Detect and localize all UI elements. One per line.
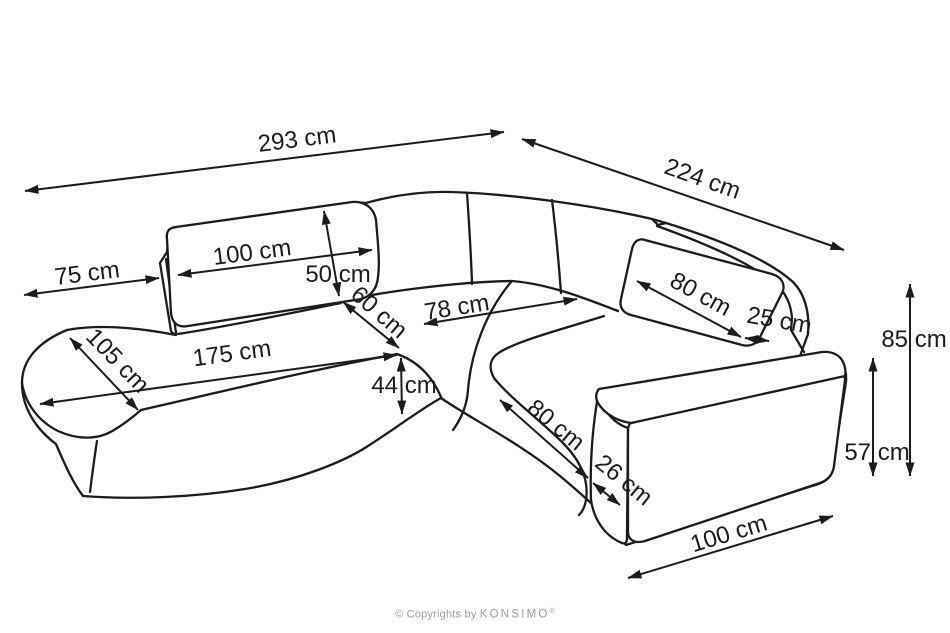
copyright-note: © Copyrights by KONSIMO®	[0, 608, 950, 621]
svg-text:85 cm: 85 cm	[881, 326, 946, 353]
svg-text:293 cm: 293 cm	[256, 121, 337, 158]
sofa-outline-drawing	[22, 192, 846, 545]
sofa-dimension-diagram: 293 cm224 cm75 cm100 cm50 cm60 cm78 cm80…	[0, 0, 950, 633]
svg-text:57 cm: 57 cm	[844, 439, 909, 466]
dim-chaise-overhang-75: 75 cm	[24, 256, 159, 295]
dim-armrest-height-57: 57 cm	[844, 358, 909, 476]
dim-overall-width-293: 293 cm	[25, 121, 504, 191]
diagram-canvas: 293 cm224 cm75 cm100 cm50 cm60 cm78 cm80…	[0, 0, 950, 633]
svg-text:44 cm: 44 cm	[371, 372, 436, 399]
registered-mark: ®	[550, 608, 555, 615]
copyright-icon: © Copyrights by	[395, 609, 476, 621]
svg-text:224 cm: 224 cm	[661, 153, 744, 205]
brand-logo-text: KONSIMO	[480, 609, 550, 621]
svg-text:75 cm: 75 cm	[53, 256, 121, 291]
